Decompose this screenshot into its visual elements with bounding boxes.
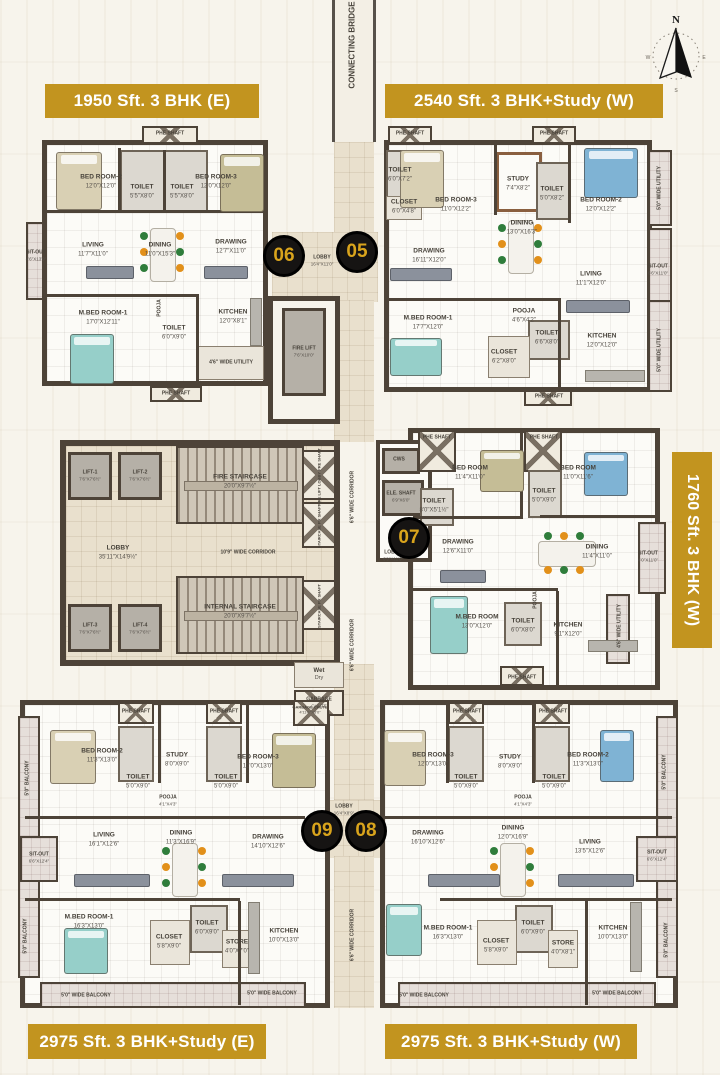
bed-icon bbox=[390, 338, 442, 376]
room-label: 5'0" WIDE BALCONY bbox=[61, 993, 111, 1000]
banner-1950-3bhk-e: 1950 Sft. 3 BHK (E) bbox=[45, 84, 259, 118]
room-label: LOBBY16'4"X11'0" bbox=[311, 255, 334, 268]
room-label: 10'9" WIDE CORRIDOR bbox=[221, 550, 276, 557]
room-label: TOILET8'0"X5'1½" bbox=[420, 498, 449, 515]
room-label: DINING11'4"X11'0" bbox=[582, 544, 612, 561]
banner-2975-3bhk-study-w: 2975 Sft. 3 BHK+Study (W) bbox=[385, 1024, 637, 1059]
wall bbox=[413, 516, 523, 519]
room-label: M.BED ROOM-117'7"X12'0" bbox=[404, 315, 453, 332]
room-label: M.BED ROOM-116'3"X13'0" bbox=[424, 925, 473, 942]
room-label: KITCHEN12'0"X8'1" bbox=[219, 309, 248, 326]
wall bbox=[446, 705, 449, 783]
room-label: POOJA bbox=[533, 591, 540, 609]
sofa-icon bbox=[440, 570, 486, 583]
bed-icon bbox=[386, 904, 422, 956]
wall bbox=[440, 898, 672, 901]
room-label: POOJA bbox=[157, 299, 164, 317]
wall bbox=[163, 150, 166, 212]
room-label: CLOSET6'0"X4'8" bbox=[391, 199, 417, 216]
room-label: INTERNAL STAIRCASE20'0"X9'7½" bbox=[204, 604, 276, 621]
compass: N W E S bbox=[645, 12, 707, 94]
room-label: KITCHEN12'0"X12'0" bbox=[587, 333, 618, 350]
room-label: DRAWING14'10"X12'6" bbox=[251, 834, 285, 851]
room-label: BED ROOM-311'0"X12'2" bbox=[435, 197, 477, 214]
wall bbox=[25, 898, 240, 901]
dining-set-icon bbox=[490, 843, 534, 895]
room-label: 5'0" WIDE BALCONY bbox=[247, 991, 297, 998]
room-label: CLOSET5'8"X9'0" bbox=[156, 934, 182, 951]
room-label: DRAWING12'7"X11'0" bbox=[215, 239, 246, 256]
room-label: 6'6" WIDE CORRIDOR bbox=[350, 909, 357, 961]
wall bbox=[196, 294, 199, 381]
room-label: STAIRCASE PR SHAFT bbox=[316, 584, 321, 628]
room-label: BED ROOM-211'3"X13'0" bbox=[81, 748, 123, 765]
room-label: ELE. SHAFT6'9"X6'0" bbox=[386, 491, 415, 504]
room-label: M.BED ROOM-117'0"X12'11" bbox=[79, 310, 128, 327]
room-label: 5'0" BALCONY bbox=[662, 754, 669, 789]
room-label: POOJA4'1"X4'3" bbox=[514, 795, 532, 808]
bed-icon bbox=[64, 928, 108, 974]
room-label: CLOSET6'2"X8'0" bbox=[491, 349, 517, 366]
wall bbox=[494, 145, 497, 215]
room-label: STUDY7'4"X8'2" bbox=[506, 176, 530, 193]
room-label: TOILET5'0"X9'0" bbox=[542, 774, 566, 791]
room-label: CWS bbox=[393, 457, 405, 464]
dining-set-icon bbox=[162, 843, 206, 895]
room-label: TOILET5'0"X9'0" bbox=[532, 488, 556, 505]
room-label: BED ROOM11'0"X11'6" bbox=[560, 465, 596, 482]
wall bbox=[25, 816, 305, 819]
room-label: TOILET6'0"X9'0" bbox=[195, 920, 219, 937]
unit-number-badge: 06 bbox=[263, 235, 305, 277]
room-label: BED ROOM-212'0"X12'0" bbox=[80, 174, 122, 191]
room-label: TOILET5'0"X9'0" bbox=[126, 774, 150, 791]
room-label: SIT-OUT6'6"X12'4" bbox=[29, 852, 49, 865]
room-label: KITCHEN10'0"X13'0" bbox=[598, 925, 629, 942]
room-label: LOBBY35'11"X14'9½" bbox=[99, 545, 137, 562]
room-label: SIT-OUT6'6"X12'4" bbox=[647, 850, 667, 863]
room-label: SIT-OUT6'6"X11'0" bbox=[648, 264, 668, 277]
room-label: TOILET5'0"X9'0" bbox=[214, 774, 238, 791]
corridor-mid-upper bbox=[334, 300, 374, 442]
room-label: LIVING16'1"X12'6" bbox=[89, 832, 120, 849]
sofa-icon bbox=[222, 874, 294, 887]
compass-w: W bbox=[646, 55, 651, 61]
banner-2540-3bhk-study-w: 2540 Sft. 3 BHK+Study (W) bbox=[385, 84, 663, 118]
room-label: STORE4'0"X7'0" bbox=[225, 939, 249, 956]
banner-1760-3bhk-w: 1760 Sft. 3 BHK (W) bbox=[672, 452, 712, 648]
room-label: DRAWING12'6"X11'0" bbox=[442, 539, 473, 556]
room-label: STORE4'0"X8'1" bbox=[551, 940, 575, 957]
wall bbox=[556, 591, 559, 686]
room-label: STUDY8'0"X9'0" bbox=[498, 754, 522, 771]
room-label: TOILET5'0"X9'0" bbox=[454, 774, 478, 791]
room-label: TOILET5'0"X8'2" bbox=[540, 186, 564, 203]
sofa-icon bbox=[74, 874, 150, 887]
room-label: PHE SHAFT bbox=[122, 709, 150, 716]
room-label: TOILET6'0"X8'0" bbox=[511, 618, 535, 635]
wall bbox=[47, 294, 199, 297]
room-label: STAIRCASE PR SHAFT bbox=[316, 504, 321, 548]
room-label: 5'0" BALCONY bbox=[23, 918, 30, 953]
room-label: PHE SHAFT bbox=[156, 131, 184, 138]
room-label: PHE SHAFT bbox=[423, 435, 451, 442]
kitchen-counter-icon bbox=[248, 902, 260, 974]
room-label: TOILET6'0"X9'0" bbox=[521, 920, 545, 937]
room-label: TOILET5'5"X8'0" bbox=[170, 184, 194, 201]
room-label: LIVING11'7"X11'0" bbox=[78, 242, 108, 259]
room-label: FIRE LIFT7'6"X10'0" bbox=[292, 346, 315, 359]
room-label: SIT-OUT4'6"X13'9" bbox=[26, 250, 46, 263]
room-label: LIVING13'5"X12'6" bbox=[575, 839, 606, 856]
room-label: KITCHEN9'1"X12'0" bbox=[554, 622, 583, 639]
room-label: 5'0" BALCONY bbox=[25, 760, 32, 795]
room-label: 6'6" WIDE CORRIDOR bbox=[350, 619, 357, 671]
sofa-icon bbox=[390, 268, 452, 281]
room-label: PHE SHAFT bbox=[162, 391, 190, 398]
room-label: TOILET6'0"X9'0" bbox=[162, 325, 186, 342]
compass-e: E bbox=[702, 55, 706, 61]
room-label: LIFT-17'6"X7'6½" bbox=[79, 470, 101, 483]
compass-n: N bbox=[672, 14, 680, 26]
room-label: CLOSET5'8"X9'0" bbox=[483, 938, 509, 955]
wall bbox=[585, 901, 588, 1005]
sofa-icon bbox=[204, 266, 248, 279]
floor-plan: 1950 Sft. 3 BHK (E) 2540 Sft. 3 BHK+Stud… bbox=[0, 0, 720, 1075]
room-label: BED ROOM-211'3"X13'0" bbox=[567, 752, 609, 769]
sofa-icon bbox=[566, 300, 630, 313]
room-label: LIFT-27'6"X7'6½" bbox=[129, 470, 151, 483]
room-label: M.BED ROOM13'0"X12'0" bbox=[456, 614, 499, 631]
room-label: BED ROOM11'4"X11'0" bbox=[452, 465, 488, 482]
room-label: DINING12'0"X16'9" bbox=[498, 825, 529, 842]
wall bbox=[532, 705, 535, 783]
room-label: PHE SHAFT bbox=[540, 131, 568, 138]
kitchen-counter-icon bbox=[630, 902, 642, 972]
kitchen-counter-icon bbox=[250, 298, 262, 346]
room-label: PHE SHAFT bbox=[396, 131, 424, 138]
room-label: 6'6" WIDE CORRIDOR bbox=[350, 471, 357, 523]
bed-icon bbox=[584, 148, 638, 198]
sofa-icon bbox=[86, 266, 134, 279]
wall bbox=[158, 705, 161, 783]
wall bbox=[389, 298, 559, 301]
room-label: POOJA4'6"X4'2" bbox=[512, 308, 536, 325]
room-label: GARBAGE CHUTE4'11½"X3'0" bbox=[292, 705, 327, 716]
room-label: BED ROOM-312'0"X13'0" bbox=[412, 752, 454, 769]
unit-number-badge: 09 bbox=[301, 810, 343, 852]
room-label: KITCHEN10'0"X13'0" bbox=[269, 928, 300, 945]
kitchen-counter-icon bbox=[588, 640, 638, 652]
room-label: LIFT-47'6"X7'6½" bbox=[129, 623, 151, 636]
banner-2975-3bhk-study-e: 2975 Sft. 3 BHK+Study (E) bbox=[28, 1024, 266, 1059]
room-label: TOILET6'0"X7'2" bbox=[388, 167, 412, 184]
unit-number-badge: 08 bbox=[345, 810, 387, 852]
room-label: FIRE STAIRCASE20'0"X9'7½" bbox=[213, 474, 267, 491]
compass-s: S bbox=[674, 88, 678, 94]
room-label: PHE SHAFT bbox=[508, 675, 536, 682]
room-label: SIT-OUT4'0"X11'0" bbox=[638, 551, 658, 564]
room-label: LIVING11'1"X12'0" bbox=[576, 271, 606, 288]
compass-needle-icon: N W E S bbox=[645, 12, 707, 94]
room-label: WetDry bbox=[314, 667, 325, 683]
room-label: 5'0" WIDE UTILITY bbox=[657, 328, 664, 372]
room-label: TOILET5'5"X8'0" bbox=[130, 184, 154, 201]
room-label: DINING11'0"X15'3" bbox=[145, 242, 175, 259]
bed-icon bbox=[70, 334, 114, 384]
room-label: PHE SHAFT bbox=[530, 435, 558, 442]
room-label: POOJA4'1"X4'3" bbox=[159, 795, 177, 808]
room-label: DRAWING16'11"X12'0" bbox=[412, 248, 445, 265]
room-label: PHE SHAFT bbox=[539, 709, 567, 716]
room-label: M.BED ROOM-116'3"X13'0" bbox=[65, 914, 114, 931]
unit-number-badge: 07 bbox=[388, 517, 430, 559]
room-label: FIRE LIFT LOBBY PRE SHAFT bbox=[316, 448, 321, 505]
corridor-top bbox=[334, 142, 374, 234]
room-label: LIFT-37'6"X7'6½" bbox=[79, 623, 101, 636]
room-label: BED ROOM-312'0"X12'0" bbox=[195, 174, 237, 191]
sofa-icon bbox=[558, 874, 634, 887]
wall bbox=[540, 515, 655, 518]
wall bbox=[568, 145, 571, 223]
room-label: 5'0" BALCONY bbox=[664, 922, 671, 957]
room-label: BED ROOM-212'0"X12'2" bbox=[580, 197, 622, 214]
room-label: PHE SHAFT bbox=[453, 709, 481, 716]
room-label: 5'0" WIDE BALCONY bbox=[399, 993, 449, 1000]
room-label: DINING13'0"X16'3" bbox=[507, 220, 538, 237]
room-label: BED ROOM-312'0"X13'0" bbox=[237, 754, 279, 771]
room-label: STUDY8'0"X9'0" bbox=[165, 752, 189, 769]
room-label: TOILET6'6"X8'0" bbox=[535, 330, 559, 347]
room-label: 5'0" WIDE BALCONY bbox=[592, 991, 642, 998]
room-label: 5'0" WIDE UTILITY bbox=[657, 166, 664, 210]
room-label: DINING11'3"X16'9" bbox=[166, 830, 196, 847]
room-label: 4'6" WIDE UTILITY bbox=[209, 360, 253, 367]
room-label: PHE SHAFT bbox=[210, 709, 238, 716]
wall bbox=[246, 705, 249, 783]
kitchen-counter-icon bbox=[585, 370, 645, 382]
room-label: DRAWING16'10"X12'6" bbox=[411, 830, 445, 847]
unit-number-badge: 05 bbox=[336, 231, 378, 273]
room-label: 4'6" WIDE UTILITY bbox=[617, 604, 624, 648]
room-label: CONNECTING BRIDGE bbox=[348, 1, 359, 88]
sofa-icon bbox=[428, 874, 500, 887]
room-label: PHE SHAFT bbox=[535, 394, 563, 401]
wall bbox=[385, 816, 672, 819]
